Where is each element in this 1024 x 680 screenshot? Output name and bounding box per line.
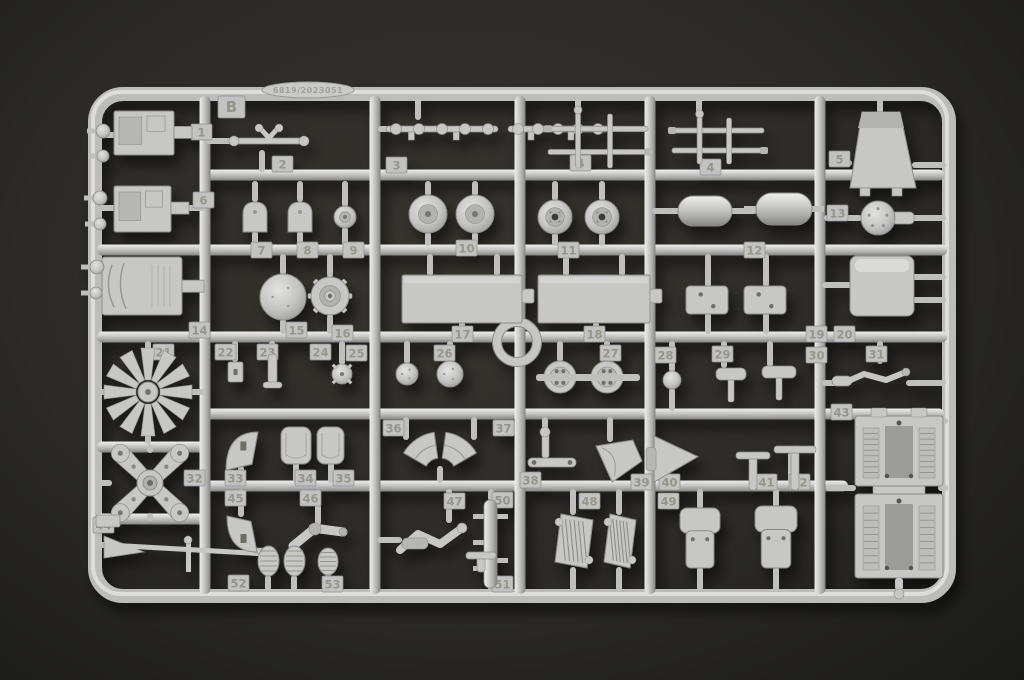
part-34 [281, 427, 311, 464]
sprue-rail-v [515, 96, 526, 594]
part-52 [258, 546, 279, 576]
part-tag-8-8: 8 [297, 242, 318, 258]
part-11 [538, 200, 572, 234]
sprue-runner [427, 254, 433, 276]
svg-text:11: 11 [560, 244, 576, 258]
sprue-runner [599, 181, 605, 201]
part-tag-53-53: 53 [322, 576, 343, 592]
svg-text:18: 18 [586, 328, 602, 342]
sprue-runner [767, 341, 773, 367]
sprue-runner [147, 513, 153, 521]
part-tag-10-10: 10 [456, 240, 477, 256]
part-tag-41-41: 41 [756, 474, 777, 490]
part-tag-6-6: 6 [193, 192, 214, 208]
part-tag-7-7: 7 [251, 242, 272, 258]
sprue-runner [616, 489, 622, 515]
part-26 [437, 361, 463, 387]
part-tag-20-20: 20 [834, 326, 855, 342]
sprue-runner [147, 444, 153, 453]
part-tag-47-47: 47 [444, 493, 465, 509]
svg-text:20: 20 [836, 328, 852, 342]
part-tag-45-45: 45 [225, 490, 246, 506]
part-tag-52-52: 52 [228, 575, 249, 591]
part-e3 [84, 191, 107, 205]
sprue-letter: B [226, 98, 237, 116]
sprue-runner [763, 254, 769, 287]
sprue-runner [280, 254, 286, 275]
part-9 [334, 206, 356, 228]
part-tag-39-39: 39 [631, 474, 652, 490]
part-tag-35-35: 35 [333, 470, 354, 486]
svg-text:49: 49 [660, 495, 676, 509]
part-19 [686, 286, 728, 314]
part-tag-14-14: 14 [189, 322, 210, 338]
sprue-runner [705, 254, 711, 287]
part-tag-2-1: 2 [272, 156, 293, 172]
part-e6 [81, 287, 102, 299]
svg-text:15: 15 [288, 324, 304, 338]
part-6 [114, 186, 189, 232]
sprue-runner [297, 181, 303, 202]
part-tag-48-48: 48 [579, 493, 600, 509]
part-tag-33-33: 33 [225, 470, 246, 486]
part-tag-19-19: 19 [806, 326, 827, 342]
part-tag-38-38: 38 [520, 472, 541, 488]
part-11b [585, 200, 619, 234]
svg-text:5: 5 [835, 153, 843, 167]
sprue-runner [705, 313, 711, 334]
part-10b [456, 195, 494, 233]
svg-text:34: 34 [297, 472, 313, 486]
part-21 [104, 348, 192, 436]
part-tag-37-37: 37 [493, 420, 514, 436]
part-tag-32-32: 32 [184, 470, 205, 486]
part-tag-11-11: 11 [558, 242, 579, 258]
part-1 [114, 111, 192, 155]
part-15 [260, 274, 306, 320]
svg-text:30: 30 [808, 349, 824, 363]
part-12 [666, 196, 744, 226]
part-47 [400, 523, 467, 550]
svg-text:45: 45 [227, 492, 243, 506]
svg-text:28: 28 [657, 349, 673, 363]
part-tag-18-18: 18 [584, 326, 605, 342]
sprue-runner [912, 274, 946, 280]
sprue-runner [342, 181, 348, 207]
sprue-runner [404, 341, 410, 364]
svg-text:37: 37 [495, 422, 511, 436]
sprue-render-root: 1234456789101112131415161718192021222324… [78, 92, 949, 599]
svg-text:43: 43 [833, 406, 849, 420]
sprue-runner [697, 567, 703, 591]
part-46 [293, 523, 347, 546]
sprue-runner [437, 466, 443, 483]
part-48 [555, 514, 593, 568]
part-22 [228, 362, 243, 382]
sprue-runner [291, 575, 297, 591]
part-4 [544, 106, 652, 168]
svg-text:9: 9 [349, 244, 357, 258]
sprue-runner [494, 254, 500, 276]
sprue-runner [425, 181, 431, 196]
part-tag-13-13: 13 [827, 205, 848, 221]
part-49b [755, 506, 797, 568]
sprue-runner [557, 341, 563, 362]
sprue-rail-v [200, 96, 211, 594]
part-tag-31-31: 31 [866, 346, 887, 362]
sprue-runner [471, 417, 477, 440]
svg-text:22: 22 [217, 346, 233, 360]
sprue-runner [552, 181, 558, 201]
part-tag-16-16: 16 [332, 325, 353, 341]
part-4b [668, 110, 768, 164]
sprue-runner [912, 162, 946, 168]
part-tag-36-36: 36 [383, 420, 404, 436]
svg-text:41: 41 [758, 476, 774, 490]
sprue-rail-v [645, 96, 656, 594]
sprue-runner [190, 389, 206, 395]
part-tag-26-26: 26 [434, 345, 455, 361]
sprue-runner [265, 575, 271, 591]
part-tag-49-49: 49 [658, 493, 679, 509]
sprue-runner [599, 233, 605, 246]
part-18 [538, 275, 662, 323]
svg-text:10: 10 [458, 242, 474, 256]
sprue-rail-v [370, 96, 381, 594]
svg-text:3: 3 [392, 159, 400, 173]
part-tag-5-5: 5 [829, 151, 850, 167]
sprue-runner [570, 567, 576, 591]
part-14 [102, 257, 204, 315]
sprue-runner [616, 567, 622, 591]
part-tag-17-17: 17 [452, 326, 473, 342]
svg-text:17: 17 [454, 328, 470, 342]
part-tag-1-0: 1 [191, 124, 212, 140]
svg-text:35: 35 [335, 472, 351, 486]
sprue-runner [339, 341, 345, 365]
part-tag-34-34: 34 [295, 470, 316, 486]
part-45 [227, 516, 257, 552]
svg-text:31: 31 [868, 348, 884, 362]
part-29 [716, 368, 746, 402]
part-12b [744, 193, 824, 225]
sprue-runner [773, 567, 779, 591]
svg-text:29: 29 [714, 348, 730, 362]
part-tag-22-22: 22 [215, 344, 236, 360]
sprue-runner [377, 537, 402, 543]
part-38 [528, 427, 576, 467]
part-25 [396, 363, 418, 385]
part-30 [762, 366, 796, 400]
svg-text:13: 13 [829, 207, 845, 221]
part-2 [229, 124, 309, 146]
sprue-runner [472, 181, 478, 196]
svg-text:39: 39 [633, 476, 649, 490]
svg-text:53: 53 [324, 578, 340, 592]
part-tag-3-2: 3 [386, 157, 407, 173]
svg-text:16: 16 [334, 327, 350, 341]
svg-text:6: 6 [199, 194, 207, 208]
svg-text:24: 24 [312, 346, 328, 360]
svg-text:40: 40 [661, 476, 677, 490]
part-13 [861, 201, 914, 235]
part-50 [473, 500, 508, 588]
sprue-mold-code: 6819/2023051 [273, 86, 343, 95]
svg-text:48: 48 [581, 495, 597, 509]
part-tag-25-25: 25 [346, 345, 367, 361]
sprue-runner [906, 380, 946, 386]
part-28 [663, 371, 681, 389]
sprue-runner [773, 489, 779, 507]
part-tag-28-28: 28 [655, 347, 676, 363]
sprue-runner [252, 181, 258, 202]
part-tag-24-24: 24 [310, 344, 331, 360]
sprue-runner [669, 388, 675, 411]
part-16 [308, 274, 352, 318]
svg-text:19: 19 [808, 328, 824, 342]
svg-text:25: 25 [348, 347, 364, 361]
part-e5 [81, 260, 104, 274]
part-10 [409, 195, 447, 233]
part-27ax [536, 374, 640, 381]
svg-text:2: 2 [278, 158, 286, 172]
svg-text:36: 36 [385, 422, 401, 436]
part-53 [318, 548, 338, 575]
sprue-rail-v [815, 96, 826, 594]
part-52b [284, 546, 305, 576]
svg-text:52: 52 [230, 577, 246, 591]
sprue-runner [763, 313, 769, 334]
sprue-photo: 1234456789101112131415161718192021222324… [0, 0, 1024, 680]
sprue-letter-tag: B [218, 96, 245, 118]
sprue-runner [259, 150, 265, 172]
part-tag-46-46: 46 [300, 490, 321, 506]
sprue-runner [697, 489, 703, 509]
sprue-runner [415, 98, 421, 120]
sprue-runner [912, 297, 946, 303]
sprue-runner [280, 319, 286, 334]
part-3 [386, 124, 498, 141]
sprue-runner [570, 489, 576, 515]
sprue-runner [552, 233, 558, 246]
part-tag-30-30: 30 [806, 347, 827, 363]
svg-text:7: 7 [257, 244, 265, 258]
part-tag-43-43: 43 [831, 404, 852, 420]
svg-text:4: 4 [706, 161, 714, 175]
part-5 [850, 112, 916, 196]
svg-text:27: 27 [602, 347, 618, 361]
part-tag-29-29: 29 [712, 346, 733, 362]
svg-text:46: 46 [302, 492, 318, 506]
svg-text:26: 26 [436, 347, 452, 361]
part-48b [604, 514, 636, 568]
sprue-mold-code-tag: 6819/2023051 [262, 82, 354, 98]
sprue-runner [607, 417, 613, 442]
sprue-runner [425, 232, 431, 246]
part-33 [226, 432, 258, 470]
sprue-runner [619, 254, 625, 276]
svg-text:38: 38 [522, 474, 538, 488]
sprue-runner [822, 282, 852, 288]
part-17 [402, 275, 534, 323]
part-8 [288, 202, 312, 232]
sprue-runner [826, 485, 856, 491]
part-tag-15-15: 15 [286, 322, 307, 338]
sprue-runner [98, 480, 112, 486]
part-tag-9-9: 9 [343, 242, 364, 258]
svg-text:33: 33 [227, 472, 243, 486]
part-tag-27-27: 27 [600, 345, 621, 361]
part-35 [317, 427, 344, 464]
svg-text:47: 47 [446, 495, 462, 509]
part-31 [832, 368, 910, 386]
svg-text:8: 8 [303, 244, 311, 258]
svg-text:32: 32 [186, 472, 202, 486]
part-49 [680, 508, 720, 568]
part-7 [243, 202, 267, 232]
svg-text:1: 1 [197, 126, 205, 140]
part-24 [332, 364, 353, 385]
part-tag-4-4: 4 [700, 159, 721, 175]
sprue-svg: 1234456789101112131415161718192021222324… [0, 0, 1024, 680]
part-tag-12-12: 12 [744, 242, 765, 258]
svg-text:14: 14 [191, 324, 207, 338]
part-43 [855, 408, 943, 599]
svg-text:12: 12 [746, 244, 762, 258]
part-19b [744, 286, 786, 314]
sprue-frame-group: 1234456789101112131415161718192021222324… [78, 92, 949, 599]
sprue-runner [98, 205, 116, 211]
part-20 [850, 256, 914, 316]
